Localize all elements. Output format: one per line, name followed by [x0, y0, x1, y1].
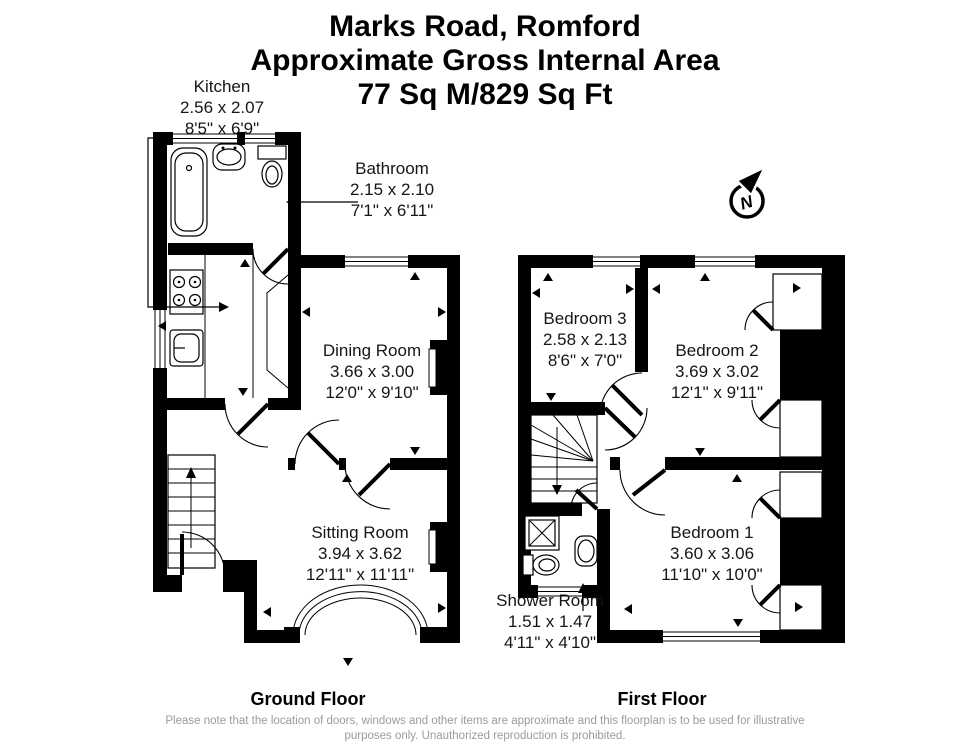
room-dim-metric: 2.56 x 2.07	[147, 97, 297, 118]
room-dim-metric: 3.66 x 3.00	[297, 361, 447, 382]
compass-n-label: N	[738, 192, 756, 214]
sitting-room-label: Sitting Room 3.94 x 3.62 12'11" x 11'11"	[270, 522, 450, 585]
ground-floor-stairs	[168, 455, 215, 568]
ground-floor-caption: Ground Floor	[228, 689, 388, 710]
room-dim-imperial: 12'0" x 9'10"	[297, 382, 447, 403]
room-dim-imperial: 8'5" x 6'9"	[147, 118, 297, 139]
page-area: 77 Sq M/829 Sq Ft	[0, 78, 970, 112]
bathtub-icon	[171, 148, 207, 236]
compass: N	[705, 155, 795, 245]
room-dim-metric: 3.69 x 3.02	[642, 361, 792, 382]
bedroom2-label: Bedroom 2 3.69 x 3.02 12'1" x 9'11"	[642, 340, 792, 403]
room-dim-metric: 2.58 x 2.13	[510, 329, 660, 350]
room-name: Shower Room	[465, 590, 635, 611]
room-dim-imperial: 4'11" x 4'10"	[465, 632, 635, 653]
room-name: Bedroom 2	[642, 340, 792, 361]
dining-room-label: Dining Room 3.66 x 3.00 12'0" x 9'10"	[297, 340, 447, 403]
room-dim-metric: 2.15 x 2.10	[312, 179, 472, 200]
room-name: Bedroom 3	[510, 308, 660, 329]
kitchen-sink-icon	[170, 330, 203, 366]
room-dim-metric: 1.51 x 1.47	[465, 611, 635, 632]
first-floor-stairs	[531, 415, 597, 503]
toilet-icon	[258, 146, 286, 187]
kitchen-label: Kitchen 2.56 x 2.07 8'5" x 6'9"	[147, 76, 297, 139]
room-name: Sitting Room	[270, 522, 450, 543]
floorplan-page: Marks Road, Romford Approximate Gross In…	[0, 0, 970, 750]
page-subtitle: Approximate Gross Internal Area	[0, 44, 970, 78]
bathroom-sink-icon	[213, 144, 245, 170]
room-dim-imperial: 12'11" x 11'11"	[270, 564, 450, 585]
shower-room-label: Shower Room 1.51 x 1.47 4'11" x 4'10"	[465, 590, 635, 653]
bathroom-label: Bathroom 2.15 x 2.10 7'1" x 6'11"	[312, 158, 472, 221]
bedroom3-label: Bedroom 3 2.58 x 2.13 8'6" x 7'0"	[510, 308, 660, 371]
room-name: Bedroom 1	[632, 522, 792, 543]
stairs-down-arrow	[552, 485, 562, 495]
room-dim-imperial: 8'6" x 7'0"	[510, 350, 660, 371]
page-title: Marks Road, Romford	[0, 10, 970, 44]
room-dim-metric: 3.60 x 3.06	[632, 543, 792, 564]
room-name: Bathroom	[312, 158, 472, 179]
room-dim-imperial: 7'1" x 6'11"	[312, 200, 472, 221]
room-name: Dining Room	[297, 340, 447, 361]
room-dim-metric: 3.94 x 3.62	[270, 543, 450, 564]
room-dim-imperial: 12'1" x 9'11"	[642, 382, 792, 403]
room-dim-imperial: 11'10" x 10'0"	[632, 564, 792, 585]
disclaimer-line-1: Please note that the location of doors, …	[135, 714, 835, 729]
room-name: Kitchen	[147, 76, 297, 97]
shower-tray-icon	[525, 516, 559, 550]
bedroom1-label: Bedroom 1 3.60 x 3.06 11'10" x 10'0"	[632, 522, 792, 585]
first-floor-caption: First Floor	[582, 689, 742, 710]
understairs-closet	[267, 275, 288, 388]
title-block: Marks Road, Romford Approximate Gross In…	[0, 10, 970, 112]
disclaimer: Please note that the location of doors, …	[135, 714, 835, 744]
shower-sink-icon	[575, 536, 597, 566]
disclaimer-line-2: purposes only. Unauthorized reproduction…	[135, 729, 835, 744]
shower-toilet-icon	[523, 555, 559, 575]
